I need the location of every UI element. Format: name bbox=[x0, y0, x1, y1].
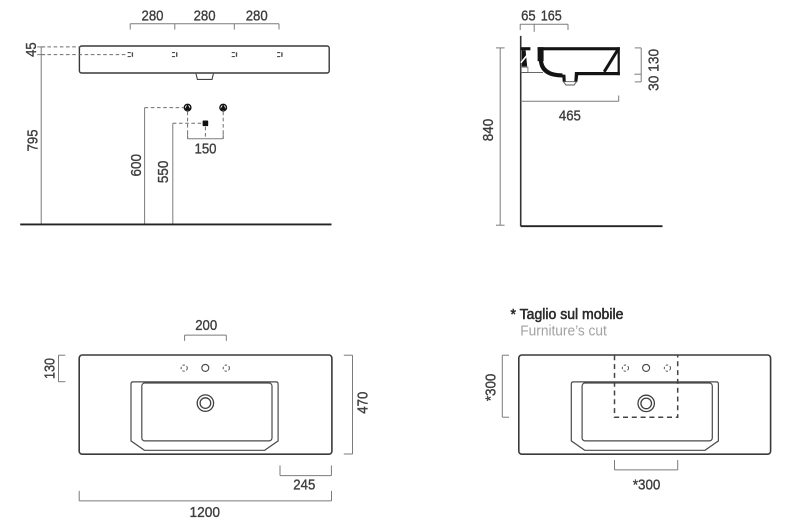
svg-text:45: 45 bbox=[23, 42, 40, 57]
svg-text:1200: 1200 bbox=[190, 504, 221, 521]
svg-text:165: 165 bbox=[541, 8, 562, 25]
svg-text:600: 600 bbox=[128, 154, 145, 177]
svg-text:30 130: 30 130 bbox=[646, 49, 663, 91]
svg-text:*300: *300 bbox=[482, 374, 499, 402]
svg-text:200: 200 bbox=[195, 317, 217, 334]
svg-text:* Taglio sul mobile: * Taglio sul mobile bbox=[511, 306, 624, 323]
svg-text:Furniture’s cut: Furniture’s cut bbox=[520, 323, 607, 339]
svg-text:150: 150 bbox=[195, 140, 217, 157]
svg-text:470: 470 bbox=[355, 392, 372, 414]
svg-text:*300: *300 bbox=[633, 477, 661, 494]
svg-text:550: 550 bbox=[155, 161, 172, 184]
svg-text:840: 840 bbox=[480, 119, 497, 142]
svg-text:465: 465 bbox=[559, 108, 581, 125]
svg-text:245: 245 bbox=[293, 476, 315, 493]
svg-text:130: 130 bbox=[42, 358, 59, 379]
svg-text:280: 280 bbox=[142, 7, 164, 24]
svg-text:795: 795 bbox=[25, 129, 42, 151]
svg-text:280: 280 bbox=[194, 7, 216, 24]
svg-text:280: 280 bbox=[246, 7, 268, 24]
svg-text:65: 65 bbox=[521, 8, 536, 25]
